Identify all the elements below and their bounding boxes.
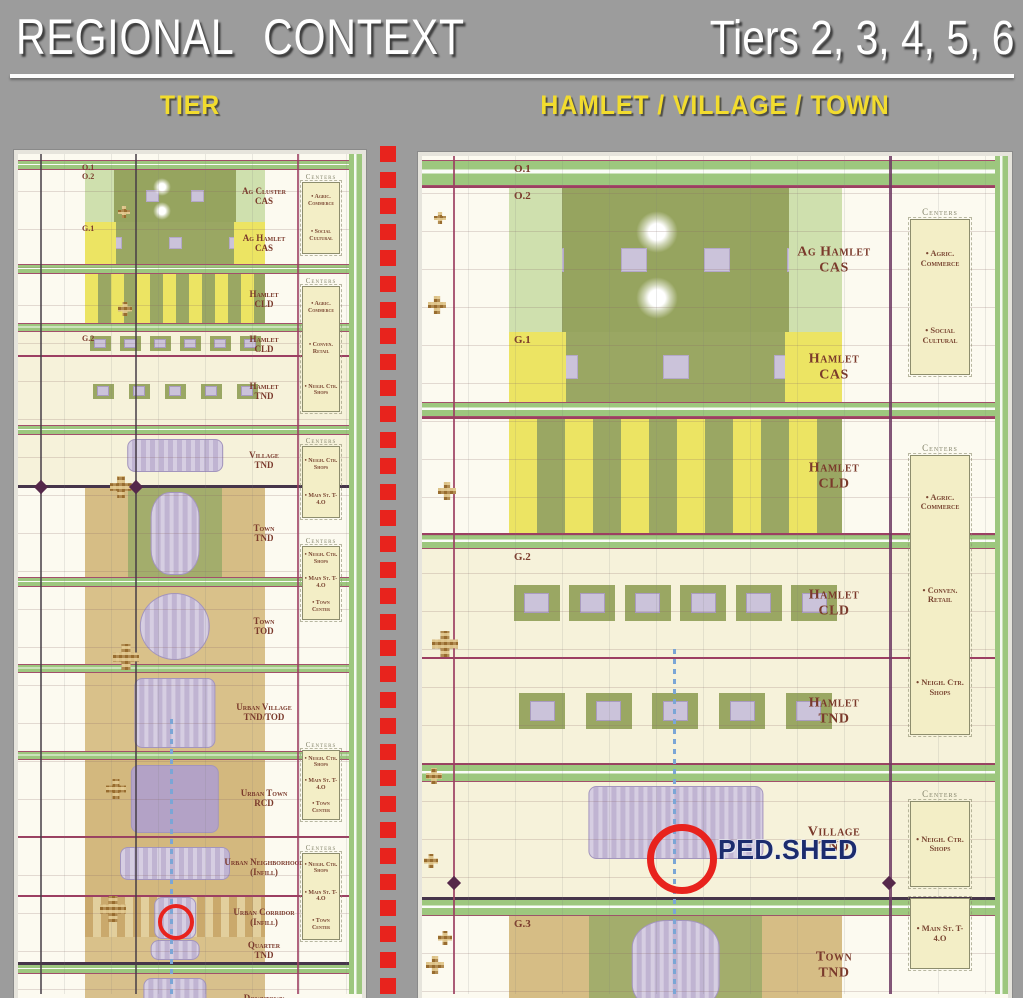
block-square — [154, 339, 167, 349]
centers-item: • Conven. Retail — [303, 342, 339, 355]
greenbelt-edge — [995, 156, 1008, 994]
block — [191, 190, 204, 202]
block — [680, 585, 726, 621]
section-line — [889, 156, 892, 994]
band-type: TND — [788, 965, 880, 981]
centers-item: • Neigh. Ctr. Shops — [911, 835, 969, 854]
ped-shed-label: PED.SHED — [718, 834, 858, 866]
block-square — [524, 593, 549, 613]
block-square — [205, 386, 218, 396]
divider-square — [380, 718, 396, 734]
band-label: HamletTND — [788, 695, 880, 726]
block — [736, 585, 782, 621]
centers-item: • Main St. T-4.O — [303, 890, 339, 903]
block-square — [530, 701, 555, 721]
centers-item: • Main St. T-4.O — [303, 493, 339, 506]
divider-square — [380, 536, 396, 552]
divider-square — [380, 146, 396, 162]
centers-box: • Agric. Commerce• Social Cultural — [302, 182, 340, 254]
grid-code: O.1 — [514, 163, 531, 175]
divider-square — [380, 614, 396, 630]
centers-item: • Social Cultural — [303, 229, 339, 242]
centers-group: Centers• Neigh. Ctr. Shops — [910, 789, 970, 887]
divider-square — [380, 484, 396, 500]
centers-header: Centers — [302, 277, 340, 285]
block-square — [730, 701, 755, 721]
page-title: REGIONAL CONTEXT — [16, 8, 465, 66]
centers-group: • Main St. T-4.O — [910, 898, 970, 969]
centers-box: • Agric. Commerce• Social Cultural — [910, 219, 970, 375]
block — [625, 585, 671, 621]
centers-item: • Main St. T-4.O — [303, 778, 339, 791]
centers-item: • Neigh. Ctr. Shops — [303, 756, 339, 769]
centers-header: Centers — [302, 173, 340, 181]
crossroads-star-icon — [636, 211, 678, 253]
block-square — [94, 339, 107, 349]
grid-code: O.1 — [82, 163, 94, 172]
block — [719, 693, 765, 729]
divider-square — [380, 692, 396, 708]
block — [101, 190, 114, 202]
band-name: Hamlet — [788, 695, 880, 711]
divider-square — [380, 978, 396, 994]
divider-square — [380, 276, 396, 292]
centers-item: • Agric. Commerce — [303, 194, 339, 207]
centers-box: • Main St. T-4.O — [910, 898, 970, 969]
centers-item: • Town Center — [303, 918, 339, 931]
divider-square — [380, 796, 396, 812]
section-line — [297, 154, 299, 994]
centers-item: • Agric. Commerce — [911, 249, 969, 268]
centers-header: Centers — [910, 207, 970, 217]
band-name: Hamlet — [788, 460, 880, 476]
divider-square — [380, 848, 396, 864]
band-type: CLD — [788, 603, 880, 619]
band-name: Ag Hamlet — [788, 244, 880, 260]
right-panel-title: HAMLET / VILLAGE / TOWN — [442, 90, 988, 122]
urban-block-cluster — [127, 439, 223, 472]
divider-square — [380, 224, 396, 240]
crossroads-star-icon — [636, 277, 678, 319]
block — [663, 355, 689, 379]
divider-square — [380, 458, 396, 474]
section-line — [135, 154, 137, 994]
centers-group: Centers• Neigh. Ctr. Shops• Main St. T-4… — [302, 844, 340, 940]
transect-axis — [673, 646, 676, 994]
divider-square — [380, 900, 396, 916]
block — [165, 384, 186, 399]
block — [150, 336, 171, 351]
block-square — [635, 593, 660, 613]
block — [704, 248, 730, 272]
block — [129, 384, 150, 399]
centers-item: • Neigh. Ctr. Shops — [303, 862, 339, 875]
divider-square — [380, 198, 396, 214]
block-square — [169, 386, 182, 396]
centers-item: • Conven. Retail — [911, 586, 969, 605]
transect-axis — [170, 714, 173, 994]
centers-item: • Agric. Commerce — [303, 301, 339, 314]
centers-header: Centers — [910, 789, 970, 799]
greenbelt-edge — [349, 154, 362, 994]
left-panel-title: TIER — [28, 90, 352, 122]
divider-square — [380, 952, 396, 968]
centers-item: • Main St. T-4.O — [911, 924, 969, 943]
divider-square — [380, 770, 396, 786]
grid-code: G.2 — [514, 551, 531, 563]
centers-header: Centers — [910, 443, 970, 453]
grid-code: G.1 — [514, 334, 531, 346]
centers-header: Centers — [302, 741, 340, 749]
section-line — [453, 156, 455, 994]
urban-block-cluster — [134, 678, 215, 749]
tiers-label: Tiers 2, 3, 4, 5, 6 — [709, 11, 1014, 66]
divider-square — [380, 640, 396, 656]
urban-block-cluster — [140, 593, 210, 660]
centers-header: Centers — [302, 844, 340, 852]
centers-box: • Agric. Commerce• Conven. Retail• Neigh… — [302, 286, 340, 412]
header-rule — [10, 74, 1014, 78]
urban-block-cluster — [151, 940, 200, 961]
centers-group: Centers• Agric. Commerce• Conven. Retail… — [910, 443, 970, 735]
grid-code: G.1 — [82, 224, 94, 233]
centers-group: Centers• Agric. Commerce• Social Cultura… — [302, 173, 340, 254]
block — [169, 237, 182, 249]
grid-code: G.2 — [82, 334, 94, 343]
centers-item: • Town Center — [303, 801, 339, 814]
centers-box: • Neigh. Ctr. Shops• Main St. T-4.O• Tow… — [302, 750, 340, 820]
section-line — [40, 154, 42, 994]
centers-box: • Neigh. Ctr. Shops — [910, 801, 970, 887]
slide: REGIONAL CONTEXT Tiers 2, 3, 4, 5, 6 TIE… — [0, 0, 1023, 998]
divider-square — [380, 406, 396, 422]
band-type: CAS — [788, 260, 880, 276]
divider-square — [380, 354, 396, 370]
centers-header: Centers — [302, 437, 340, 445]
divider-square — [380, 302, 396, 318]
divider-square — [380, 172, 396, 188]
centers-header: Centers — [302, 537, 340, 545]
block — [552, 355, 578, 379]
divider-square — [380, 328, 396, 344]
band-type: CLD — [788, 476, 880, 492]
divider-dashes — [380, 146, 397, 998]
block-square — [97, 386, 110, 396]
urban-block-cluster — [151, 492, 200, 576]
hamlet-village-town-diagram: O.1O.2Ag HamletCASG.1HamletCASHamletCLDG… — [418, 152, 1012, 998]
block — [109, 237, 122, 249]
centers-item: • Agric. Commerce — [911, 493, 969, 512]
divider-square — [380, 432, 396, 448]
divider-square — [380, 666, 396, 682]
header: REGIONAL CONTEXT Tiers 2, 3, 4, 5, 6 — [16, 8, 1014, 66]
block — [586, 693, 632, 729]
block — [93, 384, 114, 399]
ped-shed-circle-small — [158, 904, 194, 940]
centers-group: Centers• Agric. Commerce• Conven. Retail… — [302, 277, 340, 412]
block — [569, 585, 615, 621]
centers-item: • Main St. T-4.O — [303, 576, 339, 589]
centers-group: Centers• Neigh. Ctr. Shops• Main St. T-4… — [302, 741, 340, 820]
crossroads-star-icon — [153, 178, 171, 196]
centers-item: • Neigh. Ctr. Shops — [303, 384, 339, 397]
block-square — [580, 593, 605, 613]
centers-column: Centers• Agric. Commerce• Social Cultura… — [302, 154, 340, 994]
block-square — [746, 593, 771, 613]
grid-code: O.2 — [82, 172, 94, 181]
centers-box: • Neigh. Ctr. Shops• Main St. T-4.O — [302, 446, 340, 518]
centers-group: Centers• Agric. Commerce• Social Cultura… — [910, 207, 970, 375]
divider-square — [380, 588, 396, 604]
divider-square — [380, 874, 396, 890]
block — [514, 585, 560, 621]
block — [621, 248, 647, 272]
band-name: Hamlet — [788, 587, 880, 603]
grid-code: G.3 — [514, 918, 531, 930]
crossroads-star-icon — [153, 202, 171, 220]
band-name: Town — [788, 949, 880, 965]
centers-item: • Social Cultural — [911, 326, 969, 345]
divider-square — [380, 822, 396, 838]
block — [120, 336, 141, 351]
block — [538, 248, 564, 272]
centers-box: • Neigh. Ctr. Shops• Main St. T-4.O• Tow… — [302, 853, 340, 940]
block-square — [184, 339, 197, 349]
band-label: Ag HamletCAS — [788, 244, 880, 275]
centers-item: • Neigh. Ctr. Shops — [911, 678, 969, 697]
divider-square — [380, 926, 396, 942]
centers-group: Centers• Neigh. Ctr. Shops• Main St. T-4… — [302, 537, 340, 620]
ped-shed-circle — [647, 824, 717, 894]
tier-diagram: O.1O.2Ag ClusterCASG.1Ag HamletCASHamlet… — [14, 150, 366, 998]
urban-block-cluster — [131, 765, 219, 834]
block-square — [691, 593, 716, 613]
band-label: HamletCLD — [788, 587, 880, 618]
centers-item: • Neigh. Ctr. Shops — [303, 552, 339, 565]
divider-square — [380, 250, 396, 266]
divider-square — [380, 562, 396, 578]
band-label: HamletCLD — [788, 460, 880, 491]
centers-box: • Neigh. Ctr. Shops• Main St. T-4.O• Tow… — [302, 546, 340, 620]
centers-item: • Town Center — [303, 600, 339, 613]
block-square — [596, 701, 621, 721]
band-type: TND — [788, 711, 880, 727]
divider-square — [380, 380, 396, 396]
divider-square — [380, 744, 396, 760]
centers-item: • Neigh. Ctr. Shops — [303, 458, 339, 471]
band-type: CAS — [788, 367, 880, 383]
centers-column: Centers• Agric. Commerce• Social Cultura… — [910, 156, 970, 994]
grid-code: O.2 — [514, 190, 531, 202]
band-label: HamletCAS — [788, 351, 880, 382]
band-name: Hamlet — [788, 351, 880, 367]
centers-group: Centers• Neigh. Ctr. Shops• Main St. T-4… — [302, 437, 340, 518]
centers-box: • Agric. Commerce• Conven. Retail• Neigh… — [910, 455, 970, 735]
urban-block-cluster — [143, 978, 206, 998]
block — [180, 336, 201, 351]
band-label: TownTND — [788, 949, 880, 980]
block — [519, 693, 565, 729]
divider-square — [380, 510, 396, 526]
